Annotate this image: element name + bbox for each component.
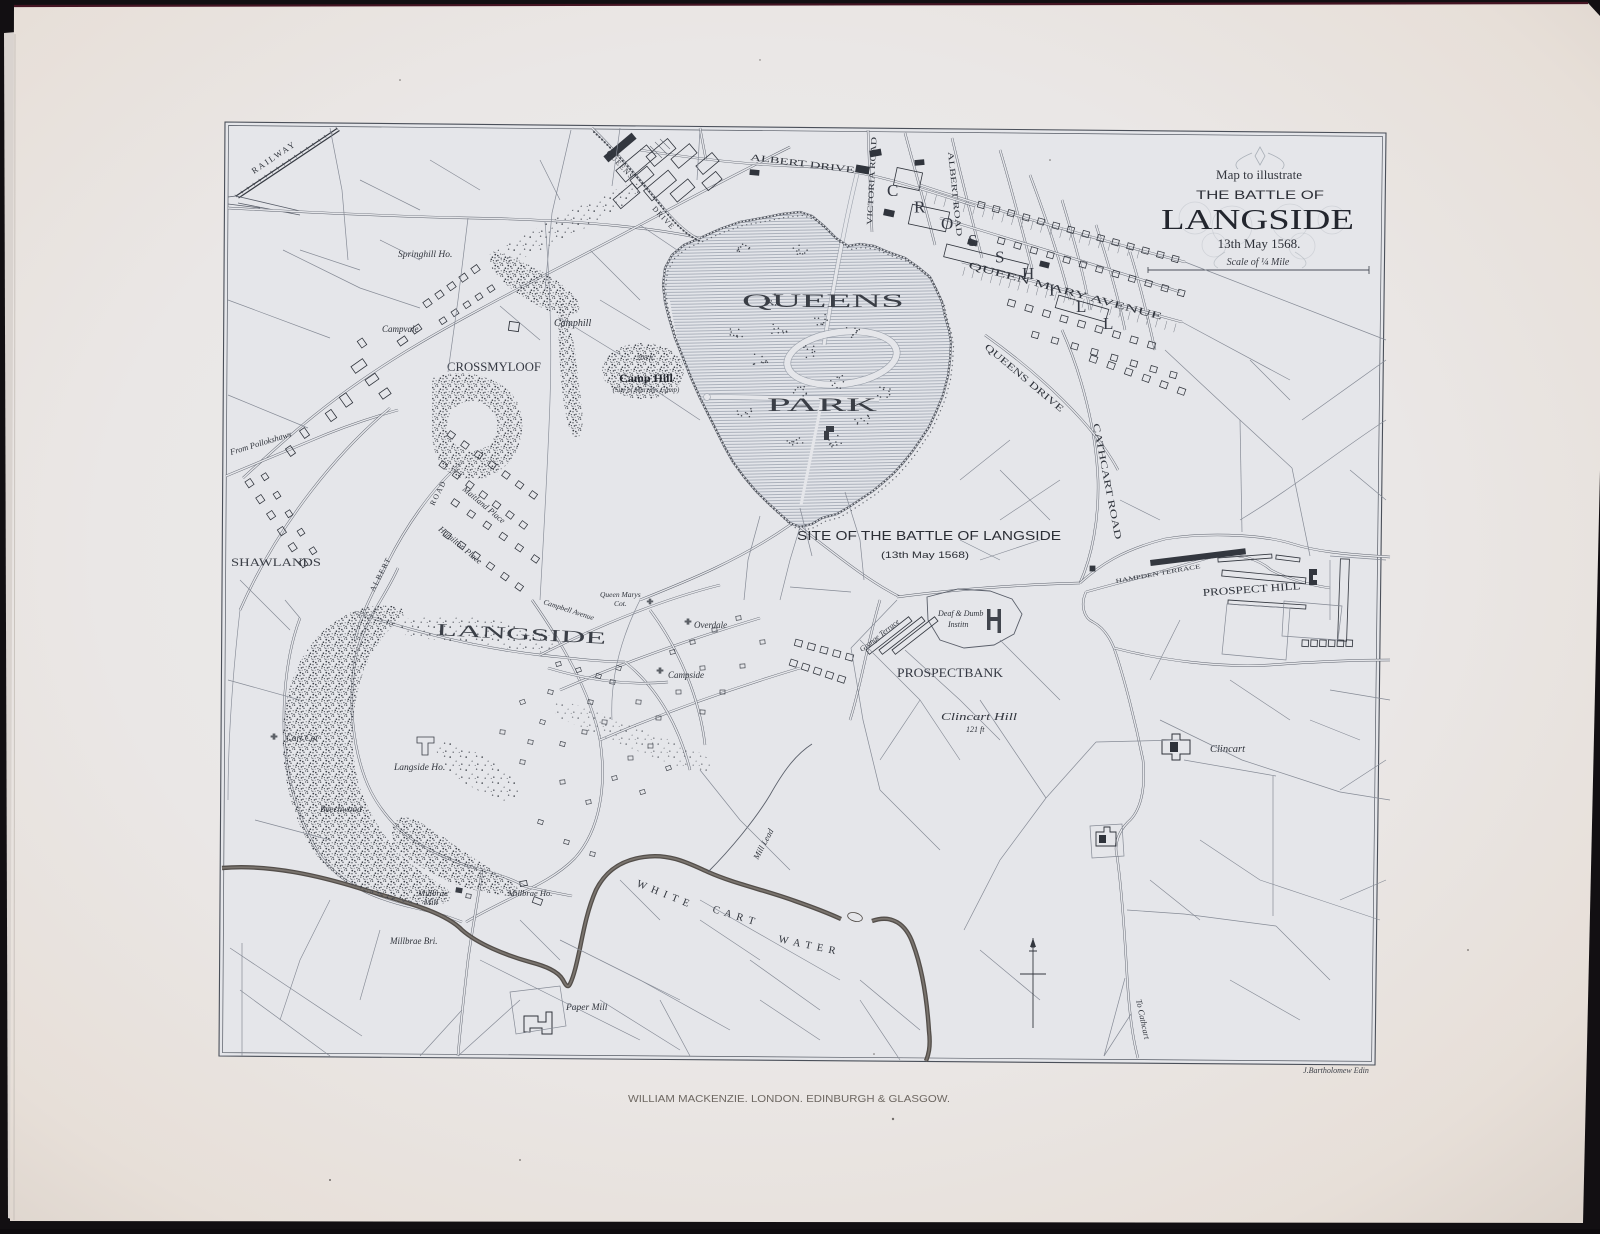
svg-text:PROSPECTBANK: PROSPECTBANK <box>897 666 1003 680</box>
svg-text:Cot.: Cot. <box>614 599 627 608</box>
svg-text:Springhill Ho.: Springhill Ho. <box>398 250 452 260</box>
svg-text:CROSSMYLOOF: CROSSMYLOOF <box>447 359 541 374</box>
svg-text:208 ft: 208 ft <box>637 354 654 362</box>
svg-text:Queen Marys: Queen Marys <box>600 590 641 599</box>
svg-text:QUEENS: QUEENS <box>742 291 904 312</box>
svg-text:Institn: Institn <box>947 620 968 629</box>
svg-text:Millbrae Ho.: Millbrae Ho. <box>507 888 552 898</box>
svg-text:Paper Mill: Paper Mill <box>565 1003 608 1013</box>
svg-text:WILLIAM MACKENZIE. LONDON. EDI: WILLIAM MACKENZIE. LONDON. EDINBURGH & G… <box>628 1094 950 1105</box>
svg-text:SHAWLANDS: SHAWLANDS <box>231 555 321 569</box>
svg-text:Cart Cot: Cart Cot <box>286 733 318 743</box>
svg-text:(13th May 1568): (13th May 1568) <box>881 550 969 561</box>
svg-text:Langside Ho.: Langside Ho. <box>393 763 445 773</box>
svg-text:Map to illustrate: Map to illustrate <box>1216 167 1302 182</box>
svg-text:(Site of Murrays Camp): (Site of Murrays Camp) <box>613 386 680 394</box>
svg-text:Scale of ¼ Mile: Scale of ¼ Mile <box>1227 257 1290 268</box>
svg-text:Beechwood: Beechwood <box>320 804 362 814</box>
svg-text:121 ft: 121 ft <box>966 725 985 734</box>
svg-text:Camp Hill: Camp Hill <box>619 371 673 385</box>
svg-text:R: R <box>914 198 926 217</box>
svg-text:LANGSIDE: LANGSIDE <box>1161 204 1354 236</box>
svg-text:SITE OF THE BATTLE OF LANGSIDE: SITE OF THE BATTLE OF LANGSIDE <box>797 528 1061 543</box>
svg-text:Overdale: Overdale <box>694 620 727 630</box>
svg-text:L: L <box>1103 314 1113 333</box>
svg-text:THE BATTLE OF: THE BATTLE OF <box>1196 188 1324 202</box>
svg-text:Millbrae Bri.: Millbrae Bri. <box>389 936 438 946</box>
svg-text:C: C <box>887 181 898 200</box>
svg-text:13th May 1568.: 13th May 1568. <box>1218 236 1301 251</box>
svg-text:Campside: Campside <box>668 670 704 680</box>
svg-text:S: S <box>995 247 1004 266</box>
svg-text:J.Bartholomew Edin: J.Bartholomew Edin <box>1303 1066 1369 1075</box>
svg-text:S: S <box>968 231 977 250</box>
svg-text:Mill: Mill <box>423 897 439 907</box>
svg-text:Deaf & Dumb: Deaf & Dumb <box>937 609 983 618</box>
svg-text:PARK: PARK <box>767 395 878 416</box>
svg-text:Clincart Hill: Clincart Hill <box>941 712 1017 723</box>
svg-text:O: O <box>941 214 953 233</box>
